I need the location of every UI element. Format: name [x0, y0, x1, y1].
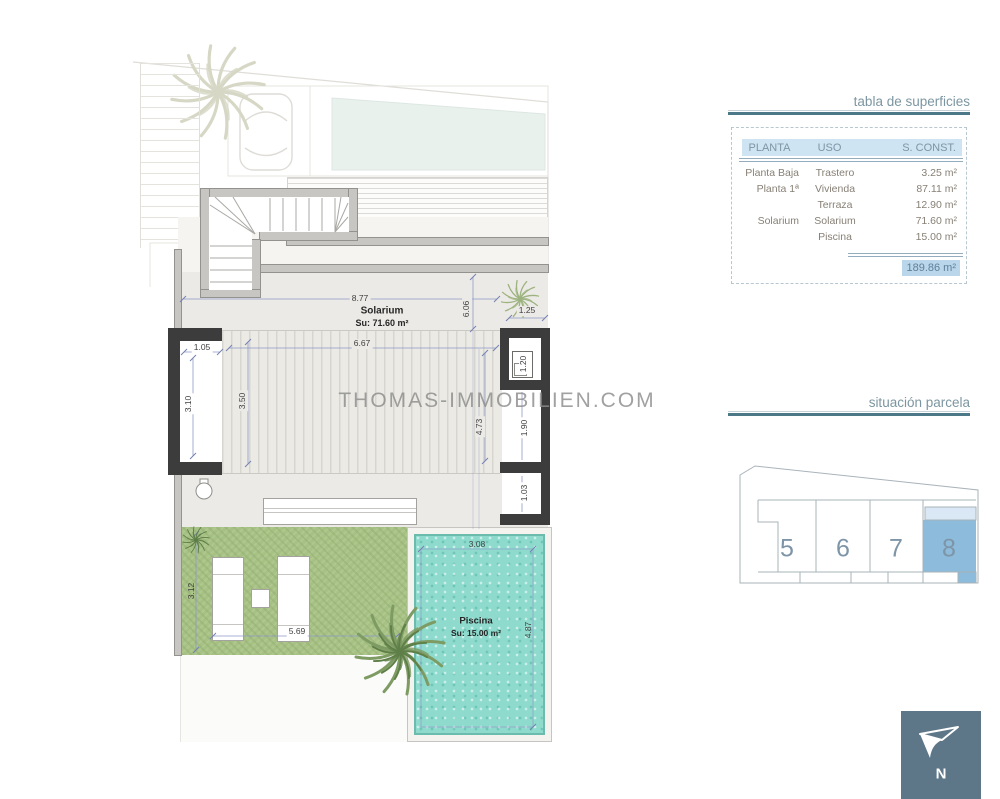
lower-yard-floor: [180, 655, 409, 742]
surfaces-table: PLANTA USO S. CONST. Planta Baja Traster…: [731, 127, 967, 284]
floorplan-page: 8.77 6.06 1.25 1.05 6.67 3.50 3.10 1.20 …: [0, 0, 1000, 799]
north-label: N: [936, 766, 947, 783]
dark-wall: [168, 328, 180, 475]
dim-label: 1.90: [520, 418, 530, 439]
lower-pool-ghost: [332, 98, 545, 170]
plot-number-7: 7: [889, 535, 903, 564]
north-compass-box: [901, 711, 981, 799]
solarium-area-label: Su: 71.60 m²: [355, 318, 408, 328]
stair-wall: [260, 232, 357, 240]
sun-lounger: [212, 557, 244, 641]
table-row: Planta Baja Trastero 3.25 m²: [739, 165, 963, 181]
col-uso: USO: [797, 142, 862, 154]
dim-label: 3.12: [187, 581, 197, 602]
title-rule: [728, 411, 970, 416]
dim-label: 6.67: [352, 339, 373, 349]
dim-label: 8.77: [350, 294, 371, 304]
cell-sconst: 87.11 m²: [871, 183, 963, 195]
dim-label: 5.69: [287, 627, 308, 637]
parcel-title: situación parcela: [869, 395, 970, 410]
cell-planta: Solarium: [739, 215, 799, 227]
table-row: Piscina 15.00 m²: [739, 229, 963, 245]
dim-label: 4.87: [524, 620, 534, 641]
dim-label: 3.08: [467, 540, 488, 550]
cell-uso: Solarium: [799, 215, 871, 227]
stair-wall: [252, 240, 260, 297]
dark-wall: [500, 462, 550, 473]
surfaces-table-header: PLANTA USO S. CONST.: [742, 139, 962, 156]
piscina-label: Piscina: [459, 616, 492, 627]
side-table: [251, 589, 270, 608]
watermark: THOMAS-IMMOBILIEN.COM: [338, 389, 655, 413]
solarium-top-wall: [255, 265, 548, 272]
stair-wall: [201, 189, 209, 297]
table-row: Terraza 12.90 m²: [739, 197, 963, 213]
cell-uso: Trastero: [799, 167, 871, 179]
cell-uso: Terraza: [799, 199, 871, 211]
dim-label: 4.73: [475, 417, 485, 438]
cell-planta: Planta Baja: [739, 167, 799, 179]
dim-label: 3.10: [184, 394, 194, 415]
cell-uso: Vivienda: [799, 183, 871, 195]
table-row: Solarium Solarium 71.60 m²: [739, 213, 963, 229]
title-rule: [728, 110, 970, 115]
cell-uso: Piscina: [799, 231, 871, 243]
stairwell-opening: [209, 197, 349, 232]
surfaces-table-title: tabla de superficies: [854, 94, 970, 109]
table-row: Planta 1ª Vivienda 87.11 m²: [739, 181, 963, 197]
dim-label: 1.05: [192, 343, 213, 353]
piscina-area-label: Su: 15.00 m²: [451, 628, 501, 638]
surfaces-rows: Planta Baja Trastero 3.25 m² Planta 1ª V…: [739, 165, 963, 245]
stair-wall: [201, 290, 260, 297]
dim-label: 1.03: [520, 483, 530, 504]
stairwell-opening: [209, 232, 252, 290]
cell-sconst: 12.90 m²: [871, 199, 963, 211]
col-sconst: S. CONST.: [862, 142, 962, 154]
car-ghost: [240, 94, 292, 170]
cell-sconst: 15.00 m²: [871, 231, 963, 243]
stair-wall: [201, 189, 357, 197]
dark-wall: [168, 462, 222, 475]
plot-number-6: 6: [836, 535, 850, 564]
parcel-outline: [740, 466, 978, 583]
dim-label: 1.25: [517, 306, 538, 316]
dark-wall: [541, 328, 550, 525]
dark-wall: [500, 514, 550, 525]
dim-label: 6.06: [462, 299, 472, 320]
cell-sconst: 71.60 m²: [871, 215, 963, 227]
planter-bench: [263, 498, 417, 525]
cell-planta: Planta 1ª: [739, 183, 799, 195]
solarium-label: Solarium: [361, 306, 404, 317]
dim-label: 1.20: [519, 354, 529, 375]
total-surface: 189.86 m²: [902, 260, 960, 276]
header-rule: [739, 158, 963, 162]
total-rule: [848, 253, 963, 257]
dim-label: 3.50: [238, 391, 248, 412]
plot-number-8: 8: [942, 535, 956, 564]
plot-number-5: 5: [780, 535, 794, 564]
cell-sconst: 3.25 m²: [871, 167, 963, 179]
col-planta: PLANTA: [742, 142, 797, 154]
